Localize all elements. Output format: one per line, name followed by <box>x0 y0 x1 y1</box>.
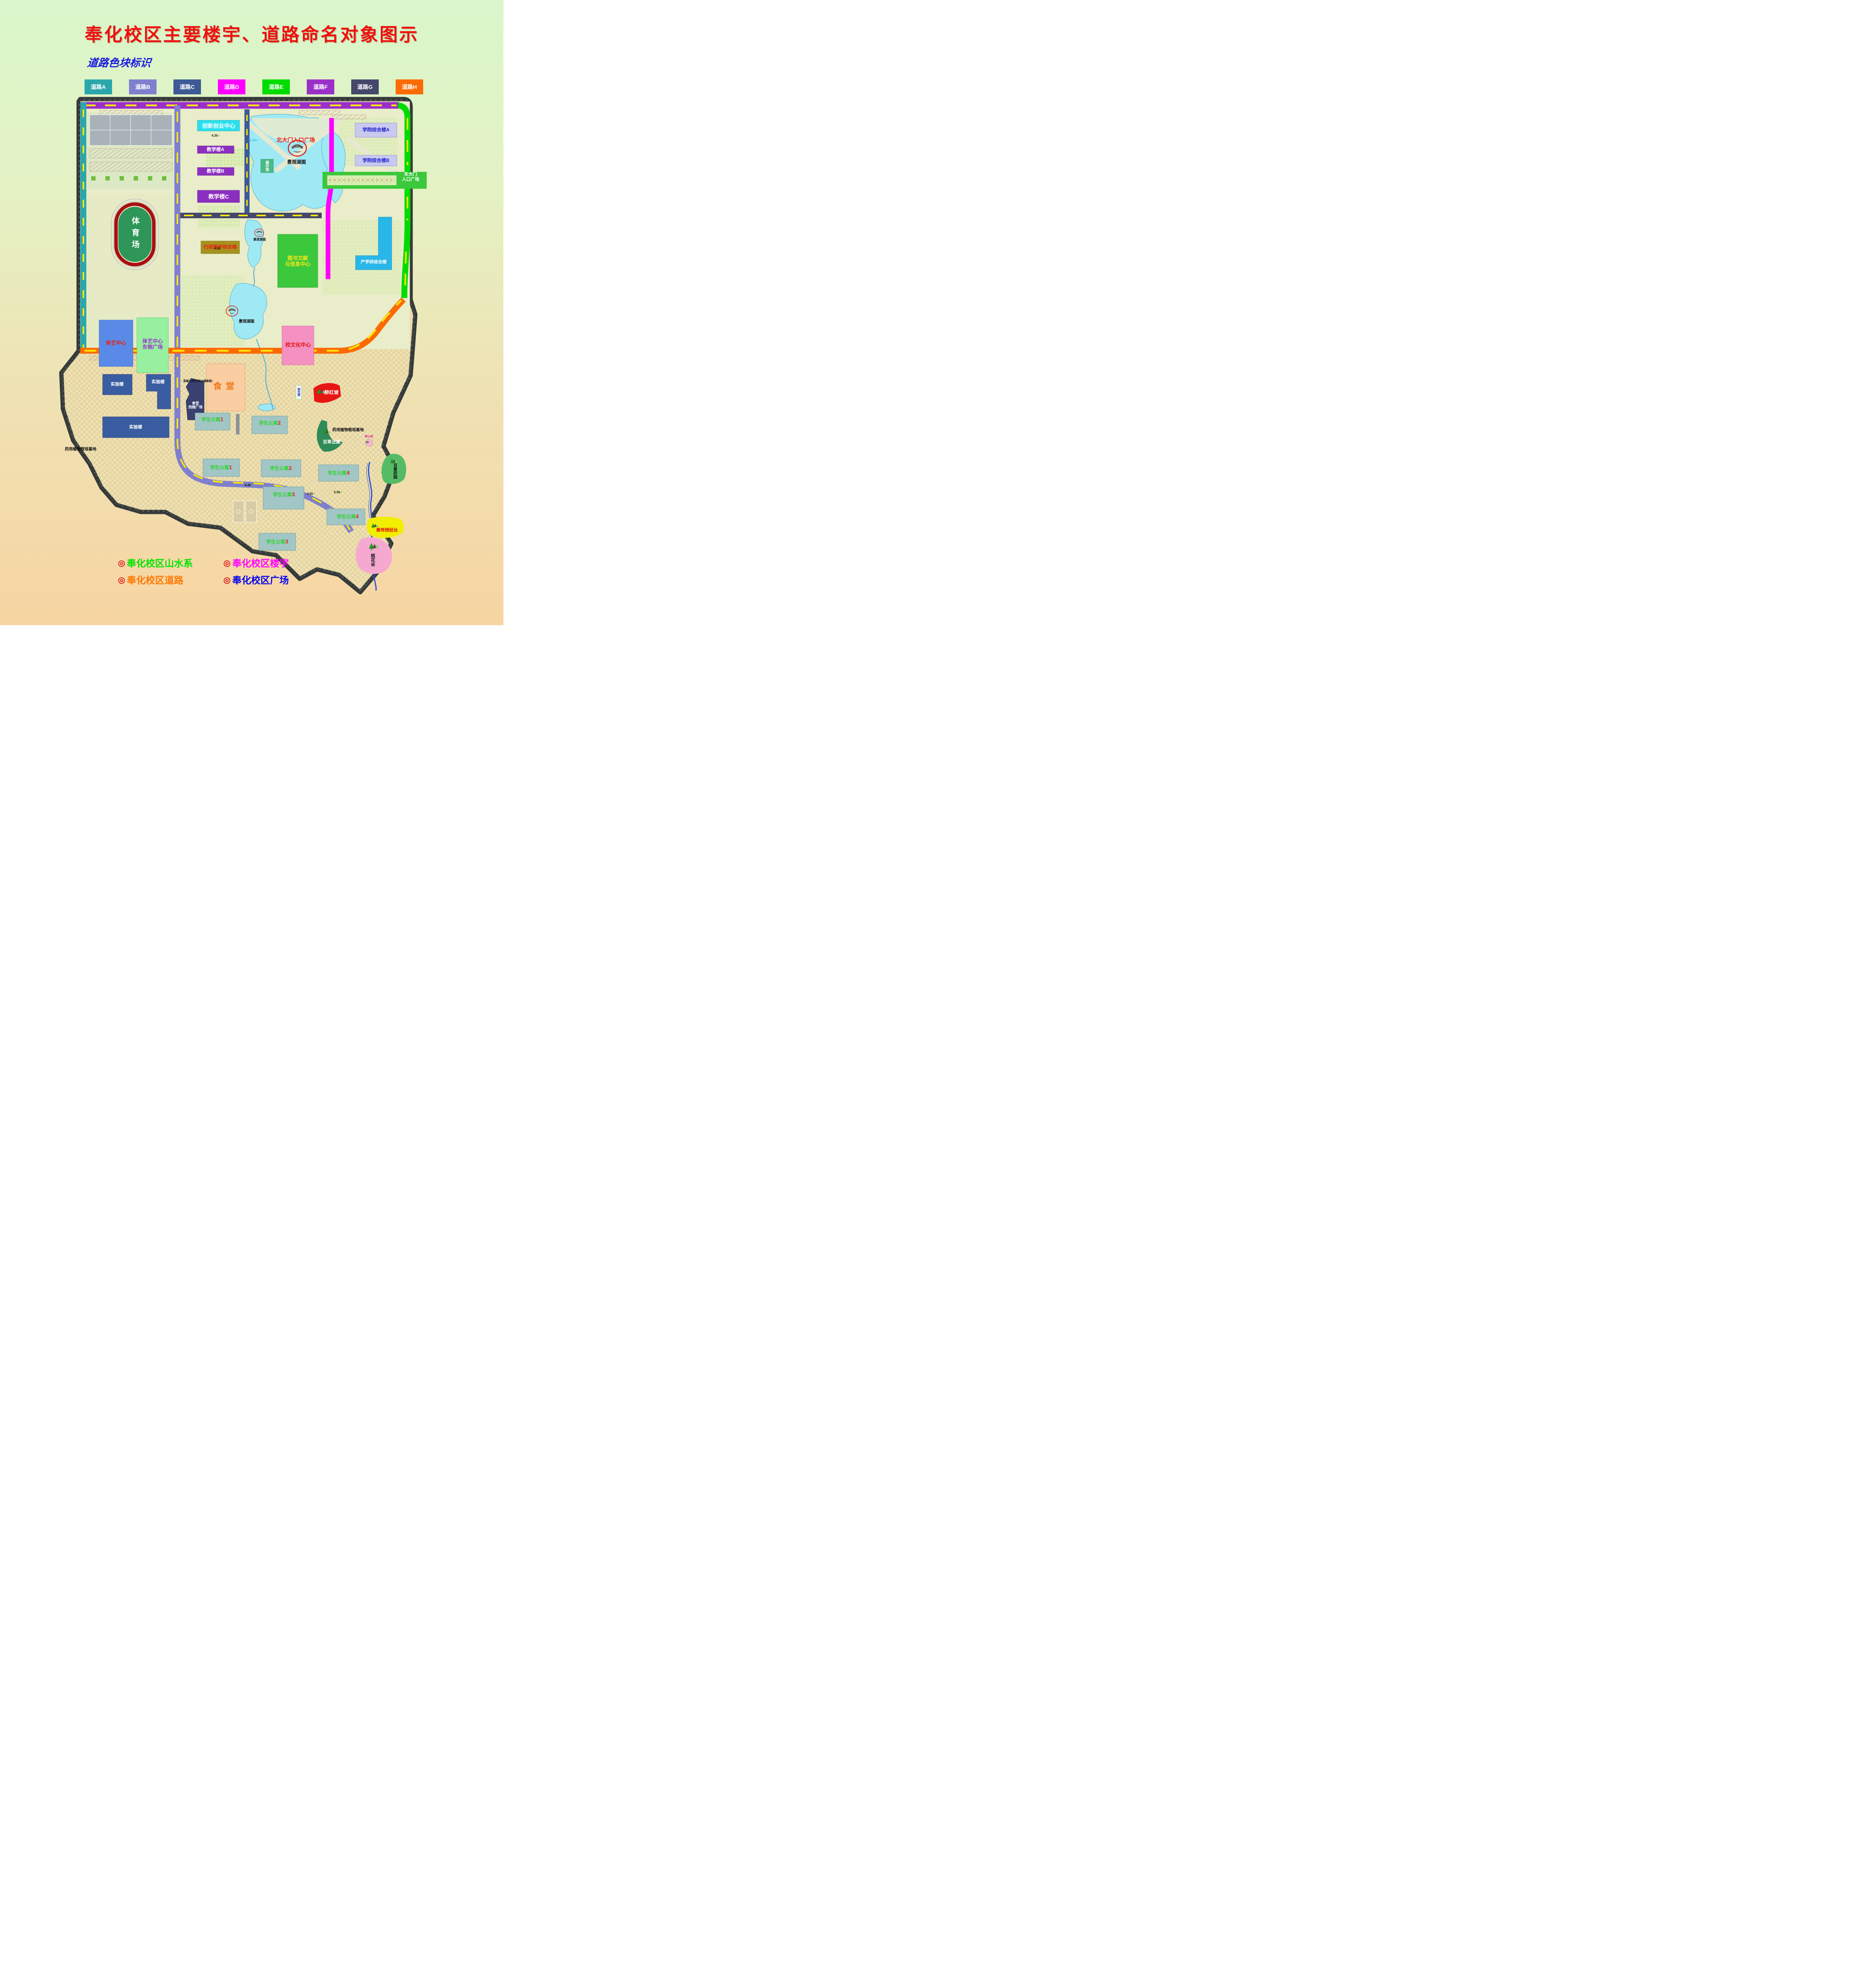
legend-road-E: 道路E <box>262 79 290 94</box>
label-dorm4-south: 学生公寓4 <box>337 514 359 520</box>
legend-bullet-icon: ◎ <box>223 576 230 585</box>
label-innovation-center: 创新创业中心 <box>202 123 235 129</box>
legend-bullet-icon: ◎ <box>223 559 230 568</box>
page-title: 奉化校区主要楼宇、道路命名对象图示 <box>0 20 503 46</box>
legend-road-G: 道路G <box>351 79 379 94</box>
elevation-marker: 4.30▼ <box>250 138 258 142</box>
label-east-gate-plaza: 东大门入口广场 <box>402 172 419 182</box>
label-lake-south: 景观湖面 <box>239 319 254 324</box>
elevation-marker: 5.00▼ <box>334 490 343 494</box>
label-dorm1-north: 学生公寓1 <box>201 416 223 423</box>
elevation-marker: 4.35▼ <box>214 247 223 250</box>
label-college-complex-a: 学院综合楼A <box>363 127 390 133</box>
label-lake-mid: 景观湖面 <box>253 237 266 241</box>
label-college-complex-b: 学院综合楼B <box>363 158 390 164</box>
label-watch-tower: 观光塔 <box>297 388 300 396</box>
label-yangxin: 养心吧 <box>365 435 373 438</box>
campus-map-poster: 奉化校区主要楼宇、道路命名对象图示 道路色块标识 道路A 道路B 道路C 道路D… <box>0 0 503 625</box>
label-culture-center: 校文化中心 <box>285 342 311 348</box>
label-teaching-a: 教学楼A <box>207 147 225 153</box>
legend-roads: ◎奉化校区道路 <box>118 572 183 586</box>
label-lake-north: 景观湖面 <box>287 160 306 165</box>
courts-northwest <box>90 115 172 145</box>
legend-road-D: 道路D <box>218 79 245 94</box>
legend-road-H: 道路H <box>396 79 423 94</box>
legend-road-C: 道路C <box>173 79 201 94</box>
legend-road-A: 道路A <box>85 79 112 94</box>
label-dorm2-north: 学生公寓2 <box>259 420 281 426</box>
label-dorm3-north: 学生公寓3 <box>273 491 295 498</box>
label-canteen-west-plaza: 食堂西侧广场 <box>188 401 203 410</box>
label-lab-3: 实验楼 <box>129 425 142 430</box>
elevation-marker: 4.35▼ <box>212 134 220 137</box>
bldg-dorm3-north <box>263 487 304 509</box>
label-baicao: 百草云集 <box>323 440 340 445</box>
label-lab-2: 实验楼 <box>152 380 165 385</box>
label-herb-base-west: 药用植物栽培基地 <box>65 447 96 452</box>
legend-buildings: ◎奉化校区楼宇 <box>223 556 289 569</box>
label-baiguo: 百果药园 <box>392 463 397 479</box>
label-dorm1-south: 学生公寓1 <box>210 464 232 471</box>
elevation-marker: 4.40▼ <box>245 483 253 487</box>
label-dorm2-south: 学生公寓2 <box>270 465 292 471</box>
label-herb-base-east: 药用植物栽培基地 <box>332 428 364 433</box>
label-dorm4-north: 学生公寓4 <box>328 470 350 476</box>
label-sports-art-center: 体艺中心 <box>106 341 126 346</box>
legend-plazas: ◎奉化校区广场 <box>223 572 289 586</box>
legend-road-F: 道路F <box>307 79 334 94</box>
label-north-gate-plaza: 北大门入口广场 <box>276 137 315 143</box>
label-lab-1: 实验楼 <box>111 382 124 387</box>
label-industry-research: 产学研综合楼 <box>361 260 387 265</box>
legend-road-B: 道路B <box>129 79 157 94</box>
label-stadium: 体育场 <box>130 217 139 252</box>
label-taohua: 桃花谷 <box>370 554 375 567</box>
label-canteen: 食堂 <box>213 381 238 391</box>
road-color-legend-title: 道路色块标识 <box>87 54 152 70</box>
label-huangdi: 黄帝授经台 <box>376 528 398 533</box>
legend-waters: ◎奉化校区山水系 <box>118 556 193 569</box>
campus-map <box>0 0 503 625</box>
label-library: 图书文献与信息中心 <box>285 256 310 267</box>
label-sports-art-east-plaza: 体艺中心东侧广场 <box>142 339 163 350</box>
label-zuihongpo: 醉红坡 <box>324 390 339 396</box>
elevation-marker: 4.50▼ <box>307 492 315 495</box>
label-dorm3-south: 学生公寓3 <box>266 539 288 545</box>
label-exhibition-hall: 展示馆 <box>265 161 269 171</box>
label-teaching-c: 教学楼C <box>208 193 229 200</box>
label-drain-note: 混凝土排水沟(上铺盖板) <box>183 380 213 383</box>
legend-bullet-icon: ◎ <box>118 559 125 568</box>
legend-bullet-icon: ◎ <box>118 576 125 585</box>
label-teaching-b: 教学楼B <box>207 169 225 174</box>
service-strip <box>236 414 240 434</box>
